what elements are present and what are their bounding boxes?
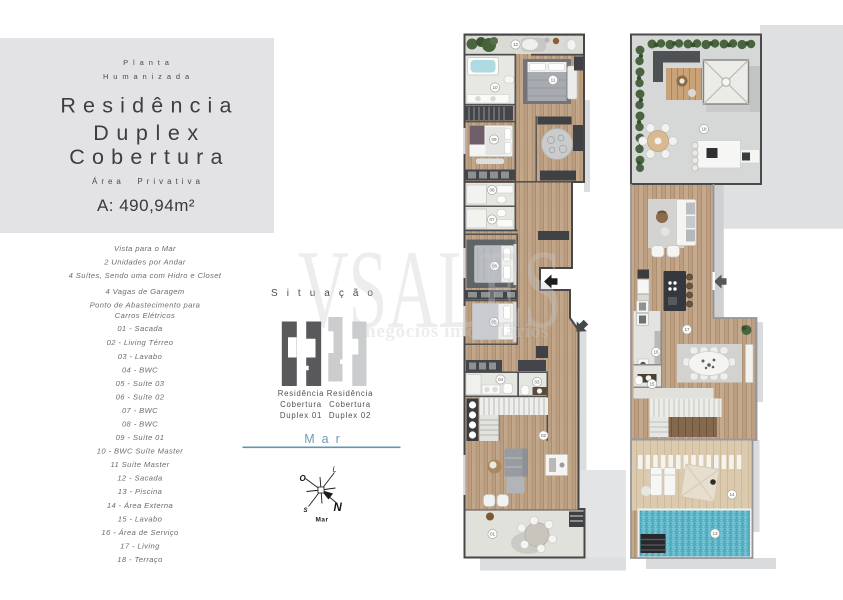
svg-text:11 Suíte Master: 11 Suíte Master xyxy=(110,460,169,469)
svg-text:13 - Piscina: 13 - Piscina xyxy=(118,487,162,496)
svg-text:04: 04 xyxy=(498,377,504,382)
svg-text:12: 12 xyxy=(513,42,519,47)
svg-text:14: 14 xyxy=(729,492,735,497)
svg-text:02: 02 xyxy=(541,433,547,438)
svg-text:03: 03 xyxy=(534,380,540,385)
svg-text:4 Suítes, Sendo uma com Hidro: 4 Suítes, Sendo uma com Hidro e Closet xyxy=(69,271,222,280)
svg-text:Cobertura: Cobertura xyxy=(69,145,229,169)
svg-text:L: L xyxy=(333,465,337,474)
svg-text:Área Privativa: Área Privativa xyxy=(92,177,204,186)
svg-text:2 Unidades por Andar: 2 Unidades por Andar xyxy=(103,258,186,267)
svg-text:Duplex 02: Duplex 02 xyxy=(329,411,371,420)
svg-text:4 Vagas de Garagem: 4 Vagas de Garagem xyxy=(105,287,184,296)
svg-text:03 - Lavabo: 03 - Lavabo xyxy=(118,352,163,361)
svg-text:16: 16 xyxy=(653,350,659,355)
svg-text:10 - BWC Suíte Master: 10 - BWC Suíte Master xyxy=(97,447,184,456)
svg-text:Residência: Residência xyxy=(278,389,325,398)
svg-text:12 - Sacada: 12 - Sacada xyxy=(117,474,162,483)
svg-text:07 - BWC: 07 - BWC xyxy=(122,406,158,415)
svg-text:01: 01 xyxy=(490,532,496,537)
svg-text:S: S xyxy=(304,508,308,514)
svg-text:Cobertura: Cobertura xyxy=(329,400,371,409)
svg-text:11: 11 xyxy=(551,78,556,83)
svg-text:Residência: Residência xyxy=(60,94,238,118)
svg-text:negócios imobiliários: negócios imobiliários xyxy=(365,321,549,342)
svg-text:14 - Área Externa: 14 - Área Externa xyxy=(107,501,173,510)
svg-text:A: 490,94m²: A: 490,94m² xyxy=(97,196,195,215)
svg-text:15: 15 xyxy=(649,382,655,387)
svg-text:Cobertura: Cobertura xyxy=(280,400,322,409)
svg-text:Residência: Residência xyxy=(327,389,374,398)
svg-text:09 - Suíte 01: 09 - Suíte 01 xyxy=(116,433,165,442)
svg-text:Humanizada: Humanizada xyxy=(103,72,194,81)
svg-text:17 - Living: 17 - Living xyxy=(120,542,160,551)
svg-text:10: 10 xyxy=(492,85,498,90)
svg-text:Ponto de Abastecimento para: Ponto de Abastecimento para xyxy=(90,301,201,310)
svg-text:08: 08 xyxy=(489,188,495,193)
svg-text:01 - Sacada: 01 - Sacada xyxy=(117,324,162,333)
svg-text:16 - Área de Serviço: 16 - Área de Serviço xyxy=(101,528,178,537)
svg-text:09: 09 xyxy=(491,137,497,142)
svg-text:07: 07 xyxy=(489,217,495,222)
svg-text:Mar: Mar xyxy=(304,432,347,446)
svg-text:O: O xyxy=(300,474,307,483)
svg-text:18: 18 xyxy=(701,127,707,132)
svg-text:04 - BWC: 04 - BWC xyxy=(122,366,158,375)
svg-text:02 - Living Térreo: 02 - Living Térreo xyxy=(107,338,174,347)
svg-text:Planta: Planta xyxy=(123,58,174,67)
svg-text:13: 13 xyxy=(712,531,718,536)
svg-text:Mar: Mar xyxy=(315,517,328,524)
svg-text:18 - Terraço: 18 - Terraço xyxy=(117,555,162,564)
svg-text:N: N xyxy=(334,502,343,514)
svg-text:Carros Elétricos: Carros Elétricos xyxy=(115,311,175,320)
svg-text:Duplex: Duplex xyxy=(93,121,206,145)
svg-text:05 - Suíte 03: 05 - Suíte 03 xyxy=(116,379,165,388)
svg-text:15 - Lavabo: 15 - Lavabo xyxy=(118,515,163,524)
svg-text:17: 17 xyxy=(684,327,690,332)
svg-text:08 - BWC: 08 - BWC xyxy=(122,420,158,429)
svg-text:Duplex 01: Duplex 01 xyxy=(280,411,322,420)
svg-text:Vista para o Mar: Vista para o Mar xyxy=(114,244,176,253)
svg-text:06 - Suíte 02: 06 - Suíte 02 xyxy=(116,393,165,402)
